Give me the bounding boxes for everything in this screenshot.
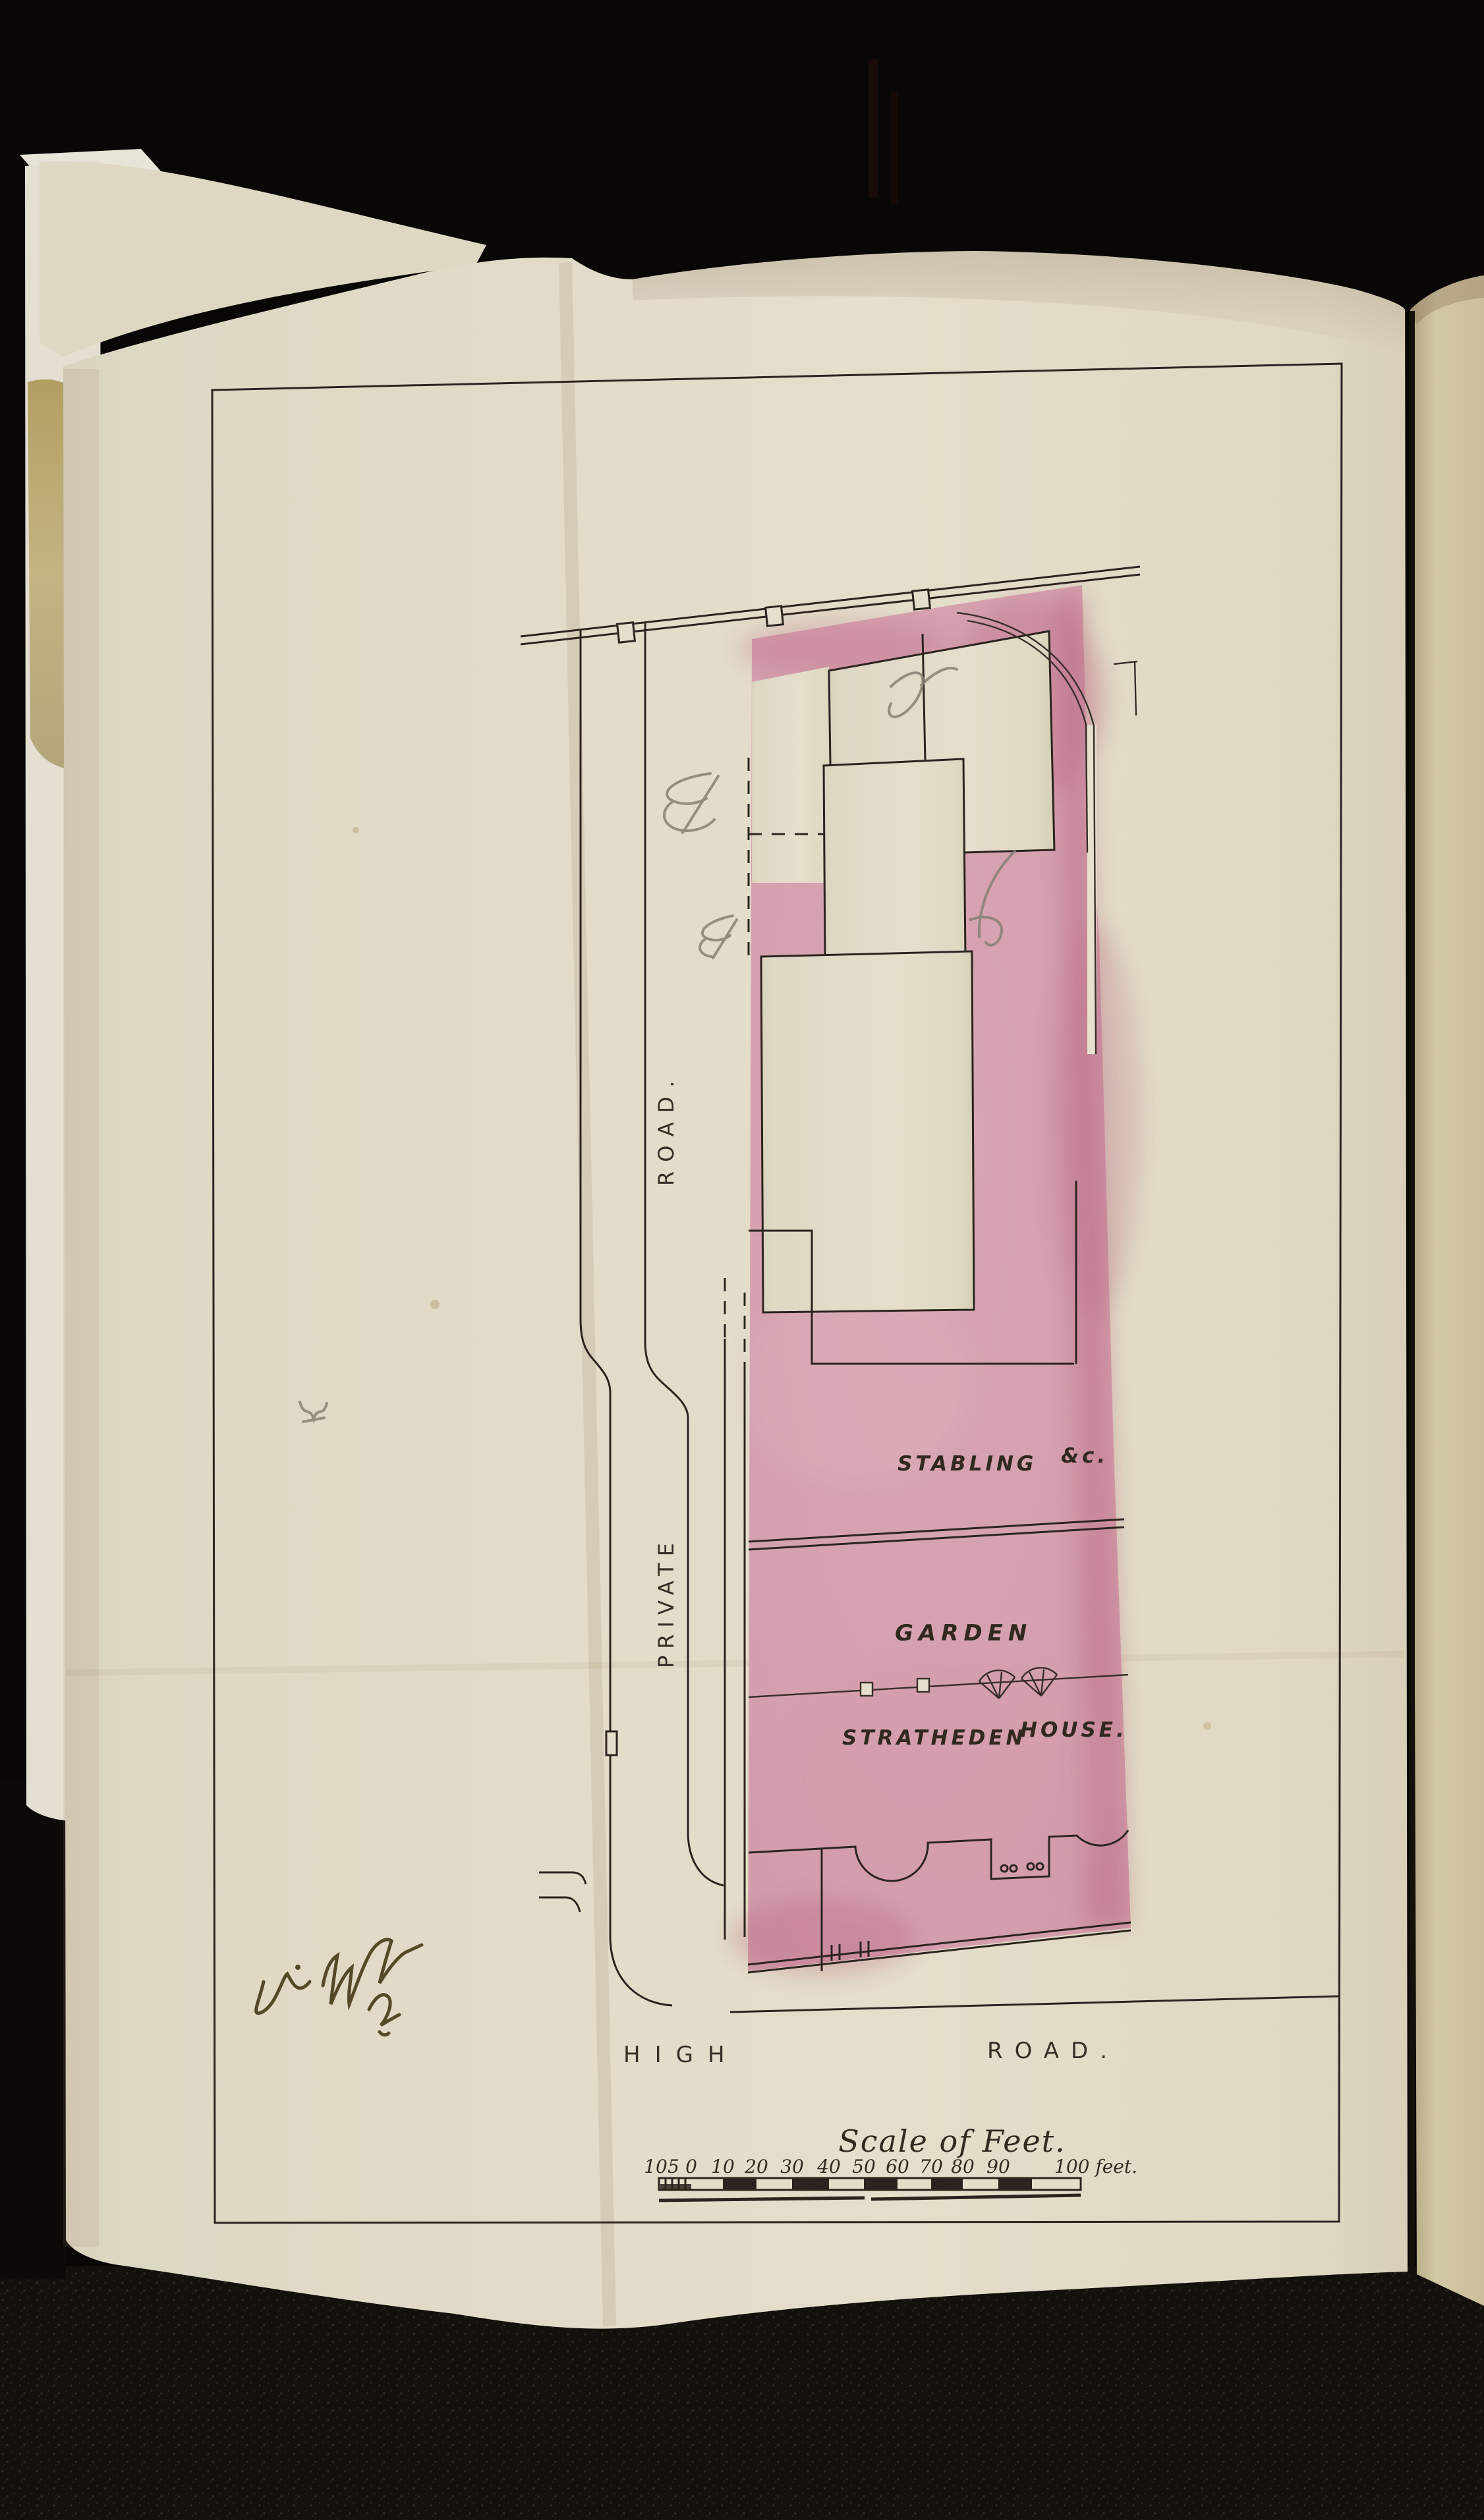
plan-canvas: STABLING &c. GARDEN STRATHEDEN HOUSE. RO… [0, 0, 1484, 2520]
scanned-plan-photograph: STABLING &c. GARDEN STRATHEDEN HOUSE. RO… [0, 0, 1484, 2520]
vignette [0, 0, 1484, 2520]
